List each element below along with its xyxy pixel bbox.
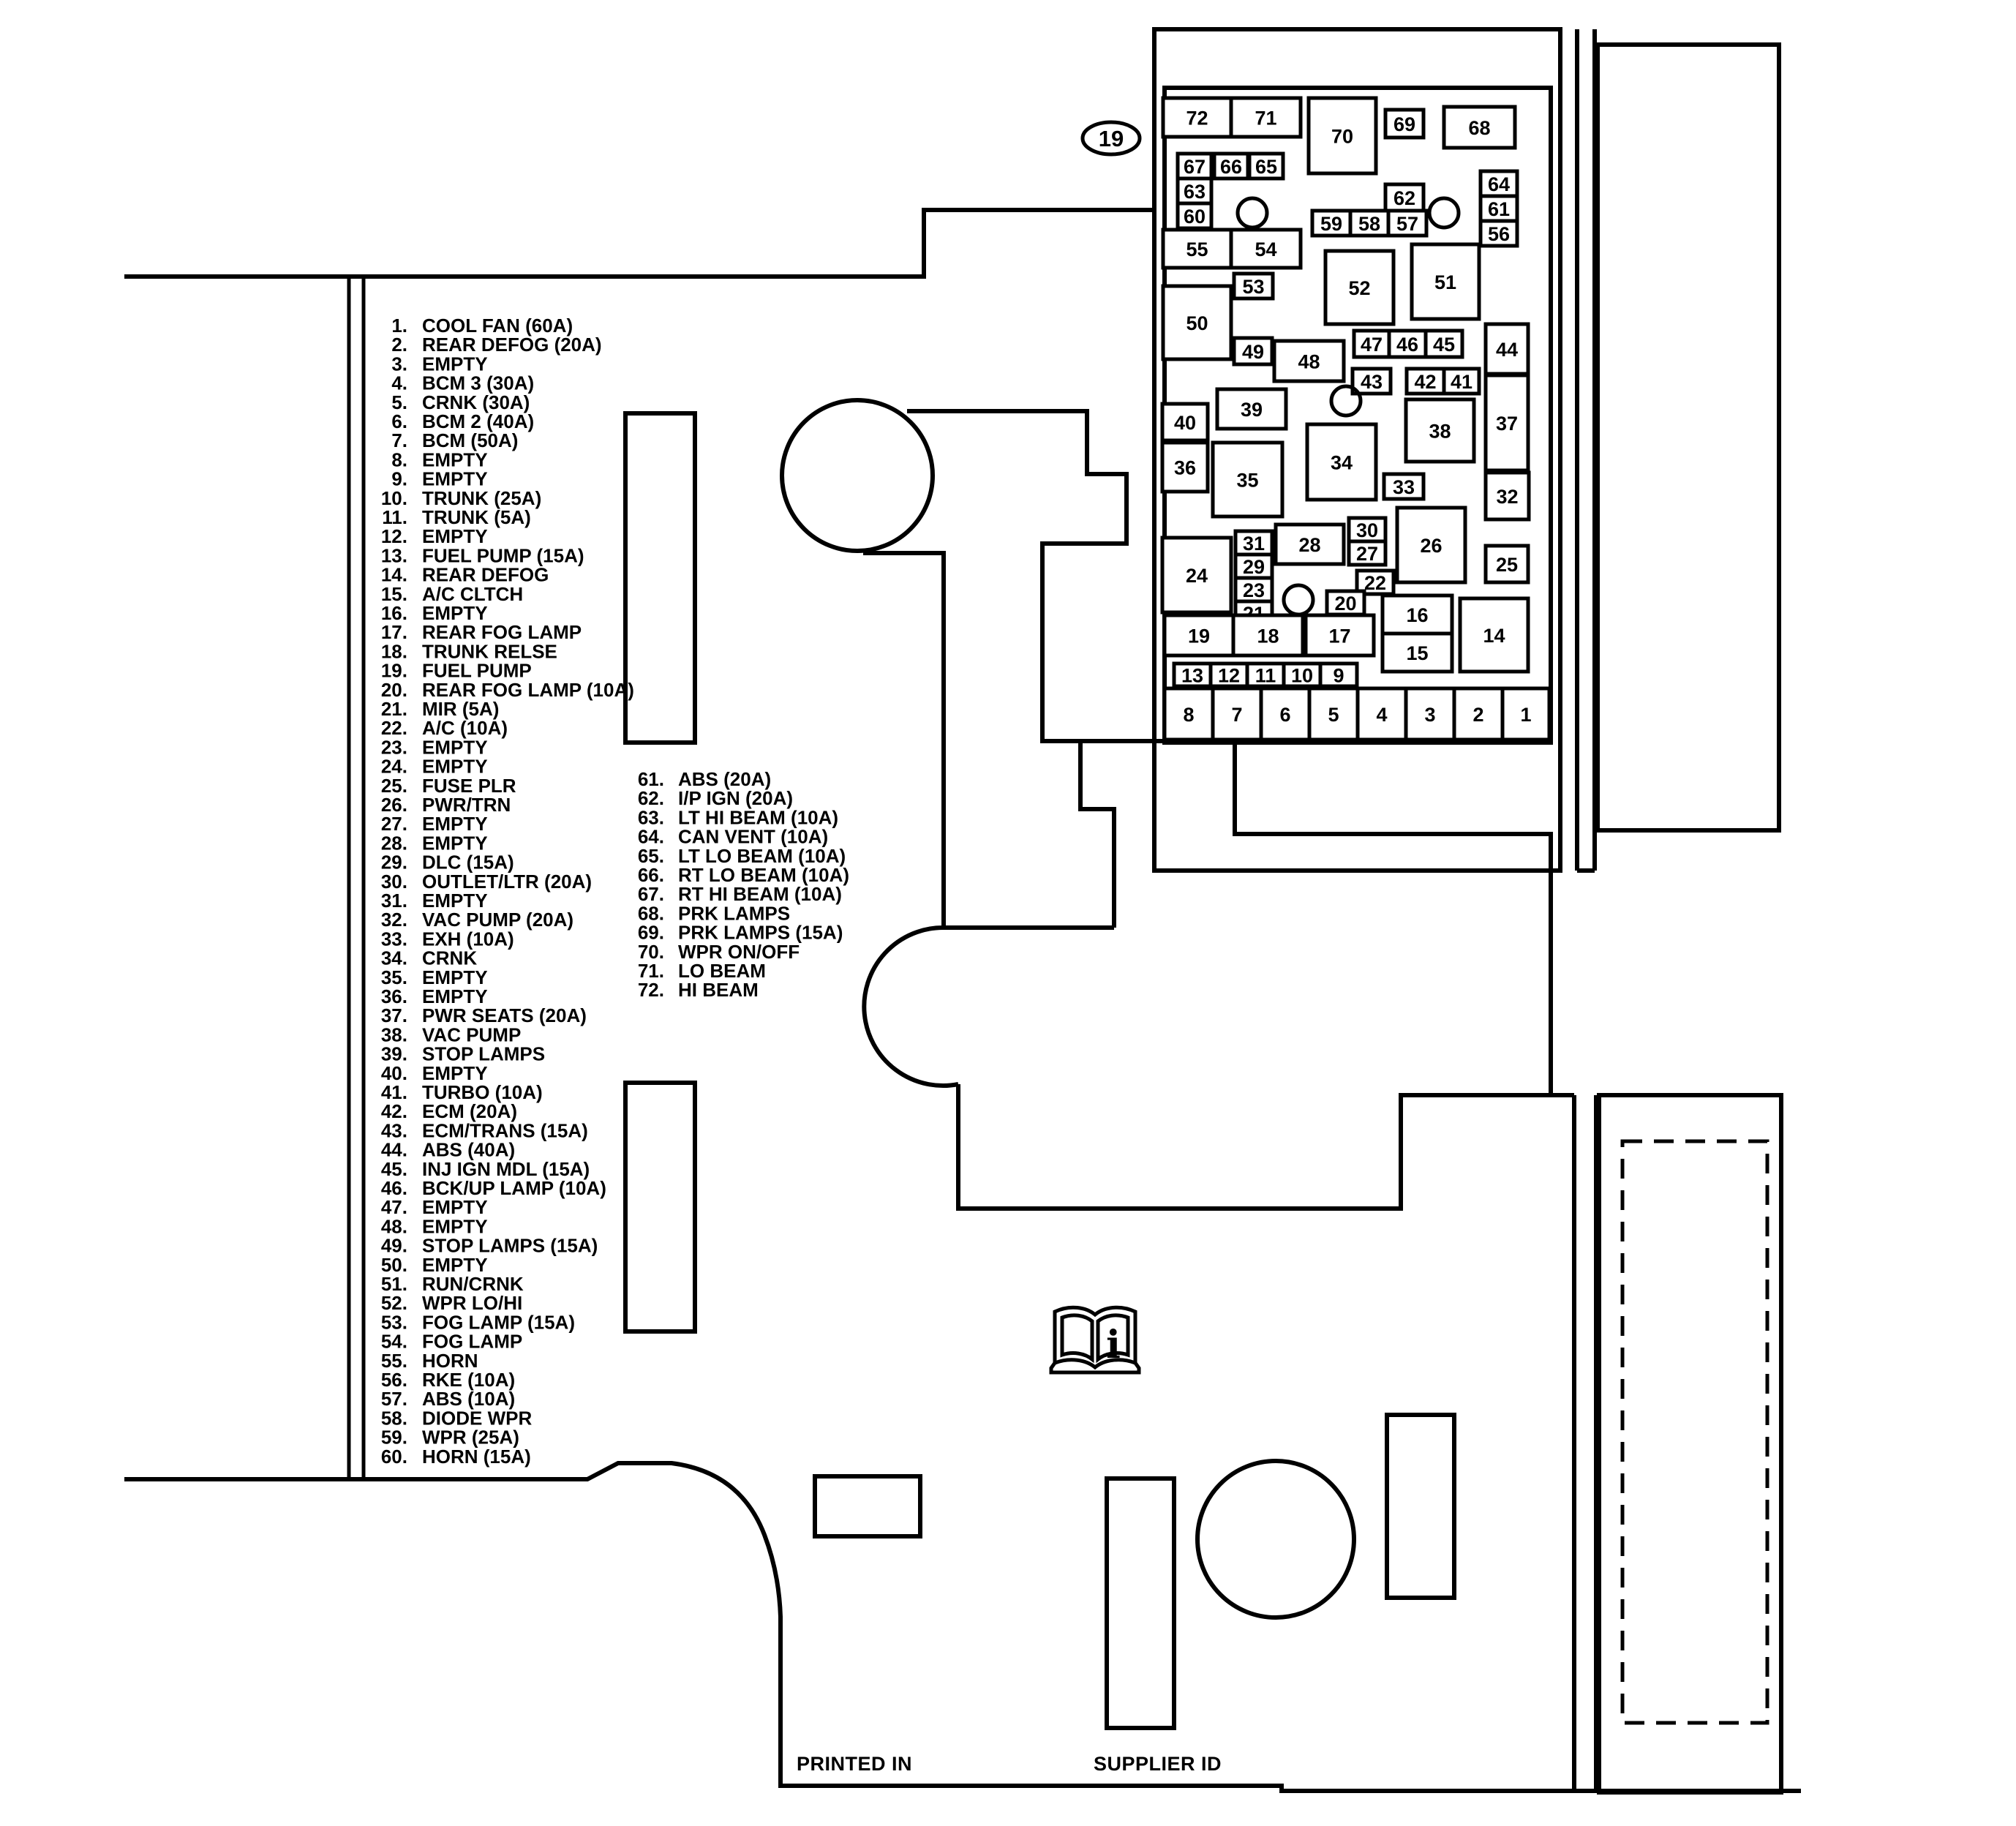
fuse-cell-label: 58 [1358, 213, 1380, 235]
mount-hole-icon [1238, 198, 1267, 228]
fuse-cell-label: 62 [1393, 187, 1415, 209]
fuse-cell-label: 5 [1328, 704, 1339, 726]
outline-keyhole-circle [782, 400, 933, 551]
fuse-cell-label: 35 [1236, 470, 1258, 492]
fuse-cell-label: 27 [1356, 543, 1378, 565]
outline-small-box [815, 1476, 920, 1536]
outline-bottom-left [124, 1463, 1801, 1791]
fuse-cell-label: 11 [1255, 665, 1276, 687]
fuse-cell-label: 72 [1186, 108, 1208, 129]
fuse-cell-label: 20 [1334, 593, 1356, 615]
fuse-cell-label: 53 [1242, 276, 1264, 298]
fuse-cell-label: 10 [1291, 665, 1313, 687]
fuse-cell-label: 3 [1424, 704, 1435, 726]
fuse-cell-label: 39 [1241, 399, 1263, 421]
fuse-cell-label: 4 [1376, 704, 1387, 726]
fuse-cell-label: 41 [1451, 371, 1472, 393]
book-info-glyph: i [1106, 1323, 1121, 1367]
mount-hole-icon [1429, 198, 1459, 228]
outline-right-column-bottom [1574, 1095, 1596, 1792]
fuse-cell-label: 6 [1279, 704, 1290, 726]
fuse-cell-label: 22 [1364, 572, 1386, 594]
fuse-cell-label: 64 [1488, 173, 1510, 195]
outline-top-step [124, 210, 1154, 277]
legend-list-61-72: 61.ABS (20A)62.I/P IGN (20A)63.LT HI BEA… [638, 768, 849, 1001]
fuse-cell-label: 65 [1255, 156, 1277, 178]
fuse-cell-label: 36 [1174, 457, 1196, 479]
outline-reservoir-circle [1197, 1461, 1354, 1618]
fuse-cell-label: 66 [1220, 156, 1242, 178]
fuse-cell-label: 45 [1433, 334, 1455, 356]
supplier-id-label: SUPPLIER ID [1094, 1753, 1222, 1775]
fuse-cell-label: 37 [1496, 413, 1518, 435]
fuse-cell-label: 59 [1320, 213, 1342, 235]
fuse-cell-label: 54 [1255, 238, 1276, 260]
fuse-cell-label: 2 [1472, 704, 1483, 726]
fuse-block: 7271706968676665636062595857646156555453… [1154, 29, 1560, 871]
fuse-cell-label: 24 [1186, 565, 1208, 587]
outline-tall-box-right [1387, 1415, 1454, 1598]
fuse-cell-label: 34 [1331, 452, 1353, 474]
fuse-cell-label: 50 [1186, 312, 1208, 334]
fuse-cell-label: 33 [1393, 476, 1415, 498]
fuse-cell-label: 18 [1257, 625, 1279, 647]
fuse-cell-label: 17 [1328, 625, 1350, 647]
fuse-cell-label: 44 [1496, 339, 1518, 361]
fuse-cell-label: 43 [1361, 371, 1383, 393]
fuse-cell-label: 68 [1468, 117, 1490, 139]
outline-slot-upper [625, 413, 695, 743]
callout-19: 19 [1083, 122, 1140, 154]
owner-manual-book-icon: i [1051, 1307, 1139, 1372]
fuse-cell-label: 49 [1242, 341, 1264, 363]
callout-label: 19 [1099, 126, 1124, 151]
underhood-fuse-block-diagram: 7271706968676665636062595857646156555453… [0, 0, 2016, 1826]
fuse-cell-label: 46 [1396, 334, 1418, 356]
outline-right-rect-bottom [1599, 1095, 1781, 1792]
fuse-cell-label: 29 [1243, 556, 1265, 578]
fuse-cell-label: 55 [1186, 238, 1208, 260]
fuse-cell-label: 19 [1188, 625, 1210, 647]
fuse-cell-label: 51 [1434, 271, 1456, 293]
fuse-cell-label: 31 [1243, 533, 1265, 555]
fuse-cell-label: 52 [1348, 277, 1370, 299]
fuse-cell-label: 48 [1298, 351, 1320, 373]
fuse-cell-label: 9 [1333, 665, 1344, 687]
fuse-cell-label: 16 [1406, 604, 1428, 626]
fuse-cell-label: 15 [1406, 642, 1428, 664]
fuse-cell-label: 32 [1496, 486, 1518, 508]
mount-hole-icon [1331, 386, 1361, 416]
fuse-cell-label: 12 [1218, 665, 1240, 687]
fuse-cell-label: 30 [1356, 519, 1378, 541]
outline-keyhole-arms [863, 411, 1574, 1209]
fuse-cell-label: 25 [1496, 554, 1518, 576]
fuse-cell-label: 38 [1429, 421, 1451, 443]
fuse-cell-label: 57 [1396, 213, 1418, 235]
outline-right-rect-top [1598, 45, 1779, 830]
outline-slot-lower [625, 1083, 695, 1331]
fuse-cell-label: 40 [1174, 412, 1196, 434]
legend-item-label-col2: HI BEAM [678, 979, 759, 1001]
fuse-cell-label: 70 [1331, 126, 1353, 148]
fuse-cell-label: 42 [1414, 371, 1436, 393]
fuse-cell-label: 28 [1298, 534, 1320, 556]
printed-in-label: PRINTED IN [797, 1753, 912, 1775]
fuse-cell-label: 60 [1184, 206, 1206, 228]
outline-tall-box-center [1107, 1479, 1174, 1728]
legend-item-number-col2: 72. [638, 979, 664, 1001]
legend-list-1-60: 1.COOL FAN (60A)2.REAR DEFOG (20A)3.EMPT… [381, 315, 634, 1468]
fuse-cell-label: 8 [1183, 704, 1194, 726]
legend-item-number-col1: 60. [381, 1446, 407, 1468]
mount-hole-icon [1284, 585, 1313, 615]
fuse-cell-label: 7 [1231, 704, 1242, 726]
fuse-cell-label: 56 [1488, 223, 1510, 245]
outline-left-pillar [349, 277, 364, 1479]
fuse-cell-label: 69 [1393, 113, 1415, 135]
fuse-cell-label: 26 [1420, 535, 1442, 557]
fuse-cell-label: 23 [1243, 579, 1265, 601]
fuse-cell-label: 61 [1488, 198, 1510, 220]
outline-right-column-top [1577, 29, 1595, 871]
outline-dashed-rect [1622, 1141, 1767, 1723]
fuse-cell-label: 47 [1361, 334, 1383, 356]
legend-item-label-col1: HORN (15A) [422, 1446, 531, 1468]
fuse-cell-label: 14 [1483, 625, 1505, 647]
fuse-cell-label: 71 [1255, 108, 1276, 129]
fuse-cell-label: 1 [1520, 704, 1531, 726]
fuse-cell-label: 67 [1184, 156, 1206, 178]
fuse-cell-label: 63 [1184, 181, 1206, 203]
fuse-cells: 7271706968676665636062595857646156555453… [1162, 98, 1549, 740]
fuse-cell-label: 13 [1181, 665, 1203, 687]
